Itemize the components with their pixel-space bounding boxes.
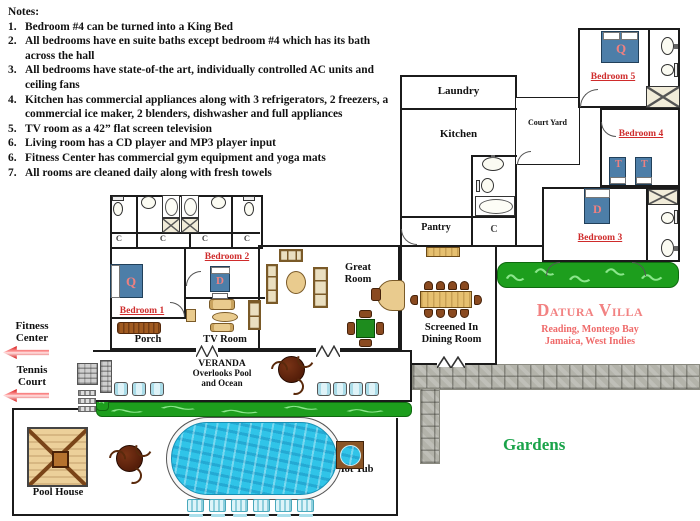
- note-item: 5.TV room as a 42” flat screen televisio…: [8, 122, 400, 137]
- sink-icon: [661, 239, 674, 257]
- loveseat: [210, 323, 234, 332]
- bed-double-bedroom2: D: [210, 266, 230, 292]
- tennis-arrow-icon: [3, 389, 49, 402]
- note-item: 2.All bedrooms have en suite baths excep…: [8, 34, 400, 63]
- notes-block: Notes: 1.Bedroom #4 can be turned into a…: [8, 5, 400, 180]
- note-item: 6.Living room has a CD player and MP3 pl…: [8, 136, 400, 151]
- console-table: [426, 247, 460, 257]
- toilet-icon: [113, 202, 123, 216]
- shower-icon: [162, 218, 180, 233]
- pantry-wall: [400, 216, 517, 218]
- bed-queen-bedroom5: Q: [601, 31, 639, 63]
- hedge-east: [497, 262, 679, 288]
- patio-chair: [150, 382, 164, 396]
- hedge-veranda: [96, 402, 412, 417]
- gym-weight-bar: [78, 398, 96, 404]
- sofa: [209, 299, 235, 310]
- floor-plan: Notes: 1.Bedroom #4 can be turned into a…: [0, 0, 700, 521]
- patio-chair: [365, 382, 379, 396]
- pool-lounger: [253, 499, 270, 512]
- shower-icon: [181, 218, 199, 233]
- porch-bench: [117, 322, 161, 334]
- bed-twin-bedroom4: T: [609, 157, 626, 185]
- bedroom3-label: Bedroom 3: [572, 233, 628, 243]
- bathtub-icon: [475, 196, 515, 216]
- oval-table: [286, 271, 306, 294]
- lounger-mat: [233, 514, 247, 517]
- lounger-mat: [277, 514, 291, 517]
- fitness-arrow-icon: [3, 346, 49, 359]
- double-door-icon: [437, 355, 465, 367]
- pool-yard-wall-bottom: [12, 514, 398, 516]
- bed-size-label: T: [641, 159, 648, 170]
- pool-lounger: [231, 499, 248, 512]
- veranda-label: VERANDAOverlooks Pooland Ocean: [177, 359, 267, 389]
- pantry-label: Pantry: [402, 222, 470, 233]
- patio-chair: [132, 382, 146, 396]
- toilet-icon: [244, 202, 254, 216]
- patio-chair: [114, 382, 128, 396]
- round-table: [116, 445, 143, 472]
- bookshelf: [313, 267, 328, 308]
- patio-chair: [333, 382, 347, 396]
- pool-house: [27, 427, 88, 487]
- toilet-icon: [476, 180, 480, 192]
- bathtub-icon: [162, 195, 180, 218]
- bedroom1-label: Bedroom 1: [115, 306, 169, 316]
- kitchen-label: Kitchen: [400, 128, 517, 140]
- dining-chair: [436, 309, 445, 318]
- stone-path-vertical: [420, 388, 440, 464]
- note-item: 1.Bedroom #4 can be turned into a King B…: [8, 20, 400, 35]
- dining-chair: [436, 281, 445, 290]
- gym-machine: [100, 360, 112, 393]
- gardens-label: Gardens: [503, 435, 565, 455]
- bed-size-label: D: [593, 202, 602, 217]
- kitchen-bath-wall-v: [471, 155, 473, 247]
- chair: [359, 310, 372, 318]
- bedroom5-bath-wall: [648, 28, 650, 86]
- pool-yard-wall-left: [12, 408, 14, 516]
- closet-label: C: [198, 234, 212, 243]
- bedroom5-label: Bedroom 5: [585, 72, 641, 82]
- laundry-label: Laundry: [400, 85, 517, 97]
- porch-label: Porch: [118, 334, 178, 346]
- hall-wall: [517, 245, 542, 247]
- bookshelf: [248, 300, 261, 330]
- toilet-icon: [674, 210, 678, 224]
- villa-name: Datura Villa: [510, 301, 670, 320]
- bed-twin-bedroom4: T: [635, 157, 652, 185]
- chair: [359, 339, 372, 347]
- double-door-icon: [196, 344, 218, 356]
- laundry-kitchen-wall: [400, 108, 517, 110]
- shelf-unit: [266, 264, 278, 304]
- lounger-mat: [211, 514, 225, 517]
- closet-label: C: [240, 234, 254, 243]
- dining-chair: [448, 281, 457, 290]
- closet-label: C: [487, 224, 501, 235]
- tennis-court-sign: TennisCourt: [4, 364, 60, 388]
- toilet-icon: [661, 64, 674, 76]
- round-table: [278, 356, 305, 383]
- chair: [347, 322, 355, 335]
- sink-icon: [141, 196, 156, 209]
- bed-size-label: D: [216, 275, 224, 287]
- dining-table: [420, 291, 472, 308]
- pool-yard-wall-right: [396, 418, 398, 516]
- side-table: [186, 309, 196, 322]
- closet-divider: [189, 232, 191, 249]
- faucet-icon: [674, 246, 678, 251]
- dining-chair: [460, 281, 469, 290]
- dining-chair: [424, 281, 433, 290]
- dining-chair: [460, 309, 469, 318]
- closet-bedroom-wall: [110, 247, 263, 249]
- dining-chair: [474, 295, 482, 305]
- patio-chair: [317, 382, 331, 396]
- dining-room-label: Screened InDining Room: [404, 322, 499, 345]
- swimming-pool: [171, 422, 337, 495]
- pool-house-label: Pool House: [23, 487, 93, 499]
- note-item: 7.All rooms are cleaned daily along with…: [8, 166, 400, 181]
- bed-size-label: Q: [616, 41, 626, 57]
- shower-icon: [646, 86, 680, 108]
- toilet-icon: [112, 196, 124, 201]
- faucet-icon: [674, 44, 678, 49]
- bed-double-bedroom3: D: [584, 188, 610, 224]
- dining-chair: [424, 309, 433, 318]
- piano: [377, 280, 405, 311]
- coffee-table: [212, 312, 238, 322]
- tv-room-label: TV Room: [194, 334, 256, 346]
- toilet-icon: [674, 63, 678, 77]
- closet-label: C: [156, 234, 170, 243]
- villa-address-line2: Jamaica, West Indies: [510, 336, 670, 347]
- lounger-mat: [255, 514, 269, 517]
- toilet-icon: [661, 212, 674, 224]
- bed-queen-bedroom1: Q: [110, 264, 143, 298]
- card-table: [356, 319, 375, 338]
- sink-icon: [482, 157, 504, 171]
- bed-size-label: T: [615, 159, 622, 170]
- lounger-mat: [299, 514, 313, 517]
- note-item: 6.Fitness Center has commercial gym equi…: [8, 151, 400, 166]
- chair: [376, 322, 384, 335]
- shower-icon: [648, 189, 678, 205]
- gym-machine: [77, 363, 98, 385]
- pool-lounger: [275, 499, 292, 512]
- note-item: 4.Kitchen has commercial appliances alon…: [8, 93, 400, 122]
- toilet-icon: [481, 178, 494, 193]
- bed-size-label: Q: [126, 274, 136, 290]
- gym-weight-bar: [78, 390, 96, 396]
- faucet-icon: [491, 155, 495, 158]
- bath-divider-2: [231, 195, 233, 248]
- gym-weight-bar: [78, 406, 96, 412]
- pool-lounger: [209, 499, 226, 512]
- shelf-unit: [279, 249, 303, 262]
- villa-address-line1: Reading, Montego Bay: [510, 324, 670, 335]
- double-door-icon: [316, 344, 340, 356]
- fitness-center-sign: FitnessCenter: [4, 320, 60, 344]
- bedroom1-porch-wall: [110, 317, 186, 319]
- dining-chair: [410, 295, 418, 305]
- toilet-icon: [243, 196, 255, 201]
- patio-chair: [349, 382, 363, 396]
- bedroom2-label: Bedroom 2: [201, 252, 253, 262]
- lounger-mat: [189, 514, 203, 517]
- dining-chair: [448, 309, 457, 318]
- piano-stool: [371, 288, 381, 301]
- bedroom4-label: Bedroom 4: [613, 129, 669, 139]
- hot-tub: [336, 441, 364, 469]
- pool-lounger: [297, 499, 314, 512]
- sink-icon: [211, 196, 226, 209]
- courtyard-label: Court Yard: [515, 119, 580, 128]
- notes-heading: Notes:: [8, 5, 400, 20]
- sink-icon: [661, 37, 674, 55]
- bathtub-icon: [181, 195, 199, 218]
- closet-label: C: [112, 234, 126, 243]
- great-room-label: GreatRoom: [334, 262, 382, 285]
- pool-lounger: [187, 499, 204, 512]
- bath-divider-1: [136, 195, 138, 248]
- note-item: 3.All bedrooms have state-of-the art, in…: [8, 63, 400, 92]
